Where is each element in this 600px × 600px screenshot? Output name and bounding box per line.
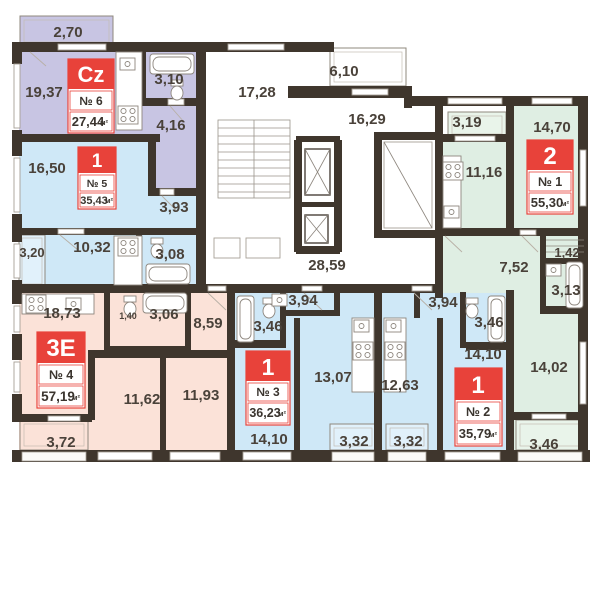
room-area-label: 11,16 — [466, 164, 503, 181]
svg-text:57,19: 57,19 — [41, 389, 75, 404]
svg-text:м²: м² — [72, 393, 81, 402]
room-area-label: 3,20 — [19, 245, 44, 260]
window — [243, 452, 291, 460]
room-area-label: 3,46 — [529, 436, 558, 453]
balcony-3-20 — [19, 235, 45, 287]
svg-text:2: 2 — [543, 143, 556, 170]
svg-text:№ 4: № 4 — [49, 368, 73, 382]
svg-text:1: 1 — [262, 354, 275, 380]
window — [228, 44, 284, 50]
staircase — [218, 120, 290, 198]
room-area-label: 13,07 — [314, 369, 352, 386]
room-area-label: 3,46 — [474, 314, 503, 331]
svg-text:№ 1: № 1 — [538, 175, 562, 189]
room-area-label: 3,94 — [288, 292, 318, 309]
window — [14, 64, 20, 128]
unit-card-3[interactable]: 1 № 3 36,23 м² — [246, 351, 290, 425]
sink-icon — [386, 320, 401, 332]
lobby-box — [246, 238, 280, 258]
window — [48, 416, 80, 421]
svg-text:1: 1 — [92, 151, 103, 172]
bathtub-icon — [146, 264, 190, 284]
room-area-label: 7,52 — [499, 259, 528, 276]
window — [448, 98, 502, 104]
room-area-label: 14,10 — [464, 346, 502, 363]
window — [532, 98, 572, 104]
room-area-label: 12,63 — [381, 377, 419, 394]
room-area-label: 6,10 — [329, 63, 358, 80]
balcony-edge — [332, 452, 374, 461]
window — [352, 89, 388, 95]
svg-text:м²: м² — [100, 118, 109, 127]
room-area-label: 8,59 — [193, 315, 222, 332]
door-opening — [412, 286, 432, 291]
window — [14, 362, 20, 392]
room-area-label: 1,40 — [119, 311, 137, 321]
room-area-label: 11,93 — [183, 387, 220, 404]
window — [580, 342, 586, 404]
unit-card-6[interactable]: Cz № 6 27,44 м² — [68, 59, 114, 133]
svg-text:35,43: 35,43 — [80, 195, 108, 207]
room-area-label: 3,93 — [159, 199, 188, 216]
sink-icon — [444, 206, 459, 218]
balcony-edge — [22, 452, 86, 461]
stove-icon — [118, 106, 138, 124]
room-area-label: 11,62 — [124, 391, 161, 408]
svg-text:№ 2: № 2 — [466, 405, 490, 419]
door-opening — [58, 229, 84, 234]
room-area-label: 3,94 — [428, 294, 458, 311]
lobby-box — [214, 238, 240, 258]
unit-card-1[interactable]: 2 № 1 55,30 м² — [527, 140, 573, 214]
door-opening — [302, 286, 322, 291]
room-area-label: 16,29 — [348, 111, 386, 128]
svg-text:35,79: 35,79 — [459, 426, 492, 441]
bathtub-icon — [237, 296, 254, 342]
stove-icon — [443, 162, 463, 180]
room-area-label: 28,59 — [308, 257, 346, 274]
balcony-edge — [388, 452, 426, 461]
window — [58, 44, 106, 50]
room-area-label: 2,70 — [53, 24, 82, 41]
room-area-label: 3,06 — [149, 306, 178, 323]
window — [445, 452, 500, 460]
stove-icon — [385, 342, 405, 360]
sink-icon — [546, 264, 561, 276]
room-area-label: 19,37 — [25, 84, 63, 101]
room-area-label: 16,50 — [28, 160, 66, 177]
svg-text:№ 6: № 6 — [79, 94, 103, 108]
room-area-label: 3,46 — [253, 318, 282, 335]
door-opening — [208, 286, 226, 291]
room-area-label: 14,10 — [250, 431, 288, 448]
svg-text:м²: м² — [489, 430, 498, 439]
room-area-label: 3,13 — [551, 282, 580, 299]
window — [98, 452, 152, 460]
svg-text:55,30: 55,30 — [531, 195, 564, 210]
svg-text:36,23: 36,23 — [249, 406, 280, 420]
door-opening — [520, 230, 536, 235]
room-area-label: 14,70 — [533, 119, 571, 136]
balcony-edge — [518, 452, 582, 461]
svg-text:1: 1 — [471, 372, 484, 399]
unit-card-4[interactable]: 3E № 4 57,19 м² — [37, 332, 85, 408]
svg-text:№ 3: № 3 — [256, 385, 280, 399]
svg-text:№ 5: № 5 — [87, 178, 108, 190]
svg-text:м²: м² — [105, 196, 114, 205]
room-area-label: 17,28 — [238, 84, 276, 101]
window — [14, 306, 20, 332]
window — [14, 158, 20, 212]
floor-plan: 2,70 19,37 3,10 4,16 16,50 3,93 3,20 10,… — [0, 0, 600, 600]
window — [455, 136, 495, 141]
room-area-label: 4,16 — [156, 117, 185, 134]
stove-icon — [118, 238, 138, 256]
svg-text:м²: м² — [561, 199, 570, 208]
window — [170, 452, 220, 460]
room-area-label: 3,10 — [154, 71, 183, 88]
window — [580, 150, 586, 206]
sink-icon — [120, 58, 135, 70]
room-area-label: 3,32 — [393, 433, 422, 450]
sink-icon — [354, 320, 369, 332]
room-area-label: 10,32 — [73, 239, 111, 256]
svg-text:3E: 3E — [46, 335, 75, 362]
room-area-label: 14,02 — [530, 359, 568, 376]
svg-text:м²: м² — [278, 409, 287, 418]
floor-plan-svg: 2,70 19,37 3,10 4,16 16,50 3,93 3,20 10,… — [0, 0, 600, 600]
room-area-label: 3,72 — [46, 434, 75, 451]
unit-card-2[interactable]: 1 № 2 35,79 м² — [455, 368, 502, 446]
stove-icon — [353, 342, 373, 360]
door-opening — [160, 189, 174, 195]
room-area-label: 3,08 — [155, 246, 184, 263]
unit-card-5[interactable]: 1 № 5 35,43 м² — [78, 147, 116, 209]
window — [532, 414, 566, 419]
room-area-label: 3,19 — [452, 114, 481, 131]
room-area-label: 18,73 — [43, 305, 81, 322]
room-area-label: 1,42 — [554, 245, 579, 260]
elevators — [214, 142, 432, 258]
sink-icon — [272, 294, 287, 306]
room-area-label: 3,32 — [339, 433, 368, 450]
svg-text:Cz: Cz — [78, 62, 105, 87]
